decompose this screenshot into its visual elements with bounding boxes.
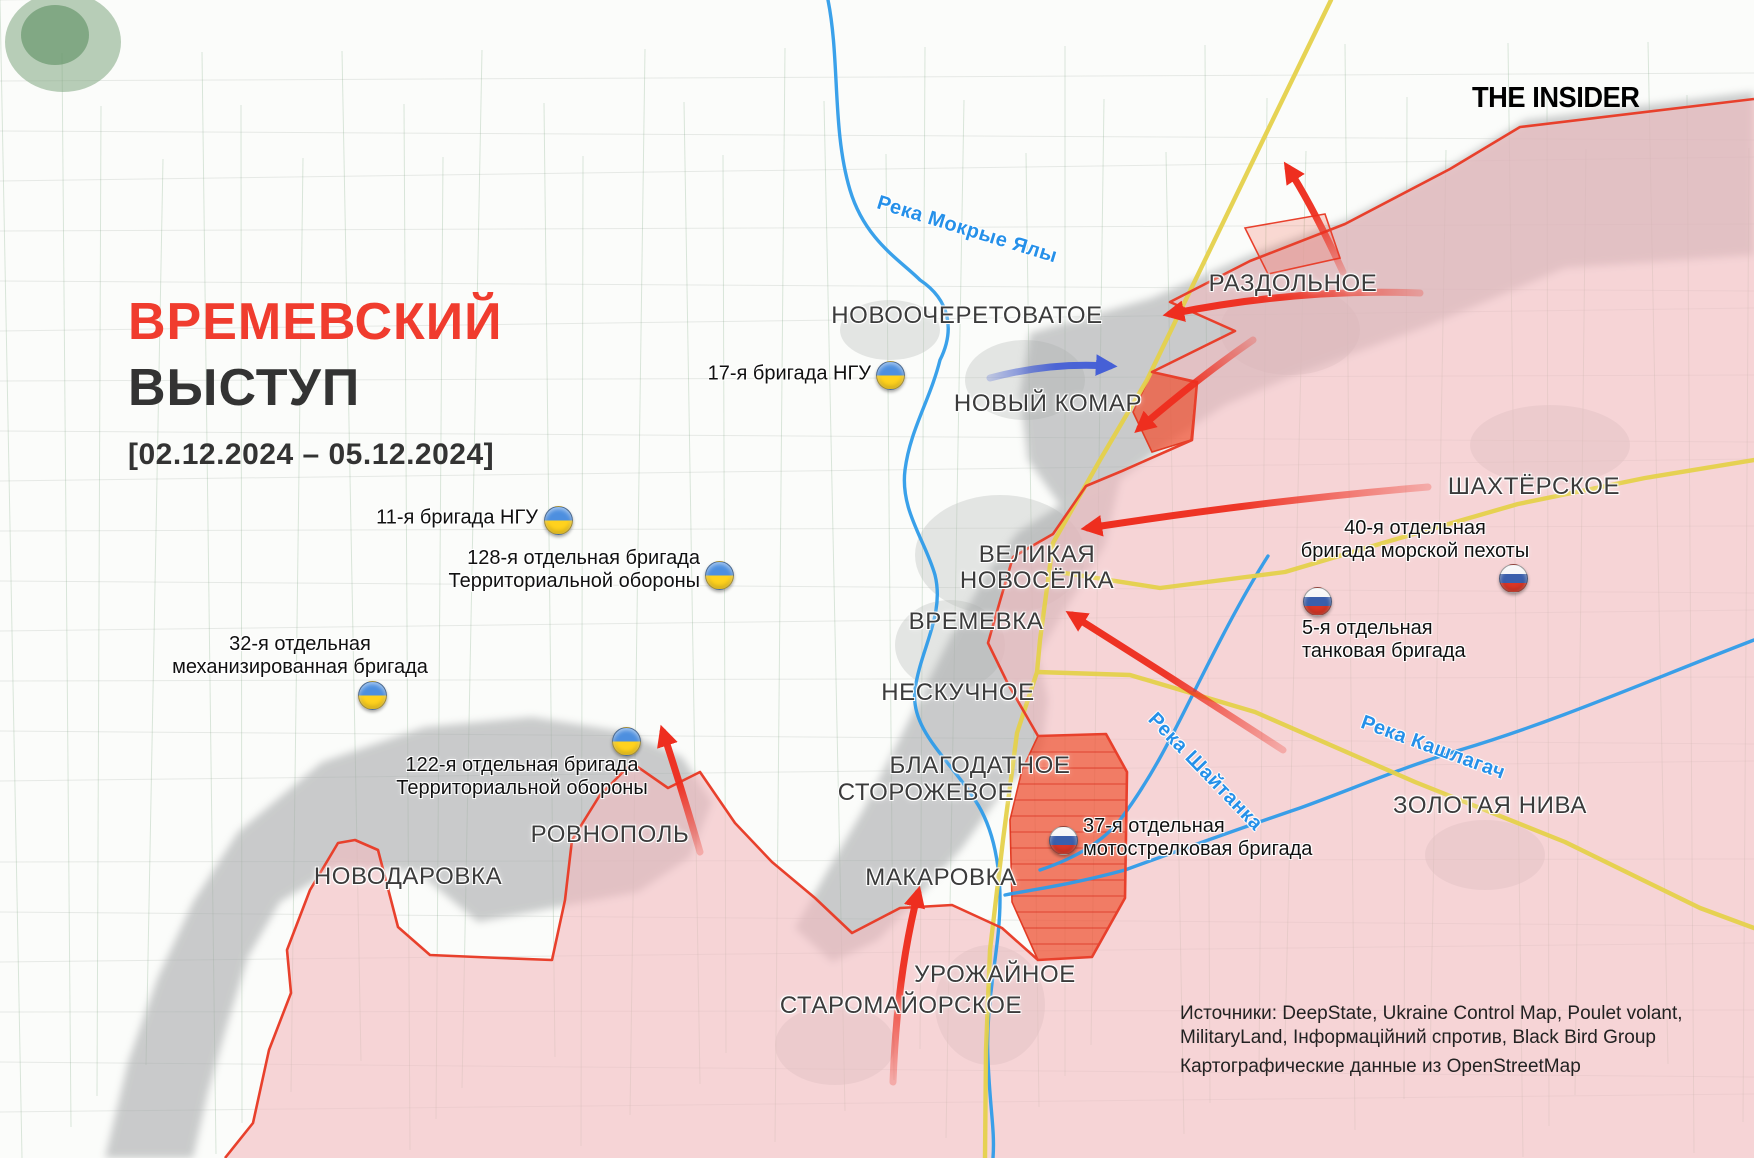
ukraine-flag-marker	[705, 561, 734, 590]
date-range: [02.12.2024 – 05.12.2024]	[128, 440, 503, 470]
ukraine-flag-marker	[612, 727, 641, 756]
sources-line-3: Картографические данные из OpenStreetMap	[1180, 1055, 1683, 1079]
sources-line-2: MilitaryLand, Інформаційний спротив, Bla…	[1180, 1026, 1683, 1050]
russia-flag-marker	[1049, 826, 1078, 855]
map-canvas: НОВООЧЕРЕТОВАТОЕНОВЫЙ КОМАРРАЗДОЛЬНОЕШАХ…	[0, 0, 1754, 1158]
title-block: ВРЕМЕВСКИЙ ВЫСТУП [02.12.2024 – 05.12.20…	[128, 296, 503, 470]
russia-flag-marker	[1303, 587, 1332, 616]
brand-logo: THE INSIDER	[1472, 82, 1639, 115]
ukraine-flag-marker	[358, 681, 387, 710]
russia-flag-marker	[1499, 564, 1528, 593]
map-graphics	[0, 0, 1754, 1158]
sources-line-1: Источники: DeepState, Ukraine Control Ma…	[1180, 1002, 1683, 1026]
ukraine-flag-marker	[544, 506, 573, 535]
map-title-line1: ВРЕМЕВСКИЙ	[128, 296, 503, 348]
map-title-line2: ВЫСТУП	[128, 362, 503, 414]
sources-block: Источники: DeepState, Ukraine Control Ma…	[1180, 1002, 1683, 1079]
ukraine-flag-marker	[876, 361, 905, 390]
